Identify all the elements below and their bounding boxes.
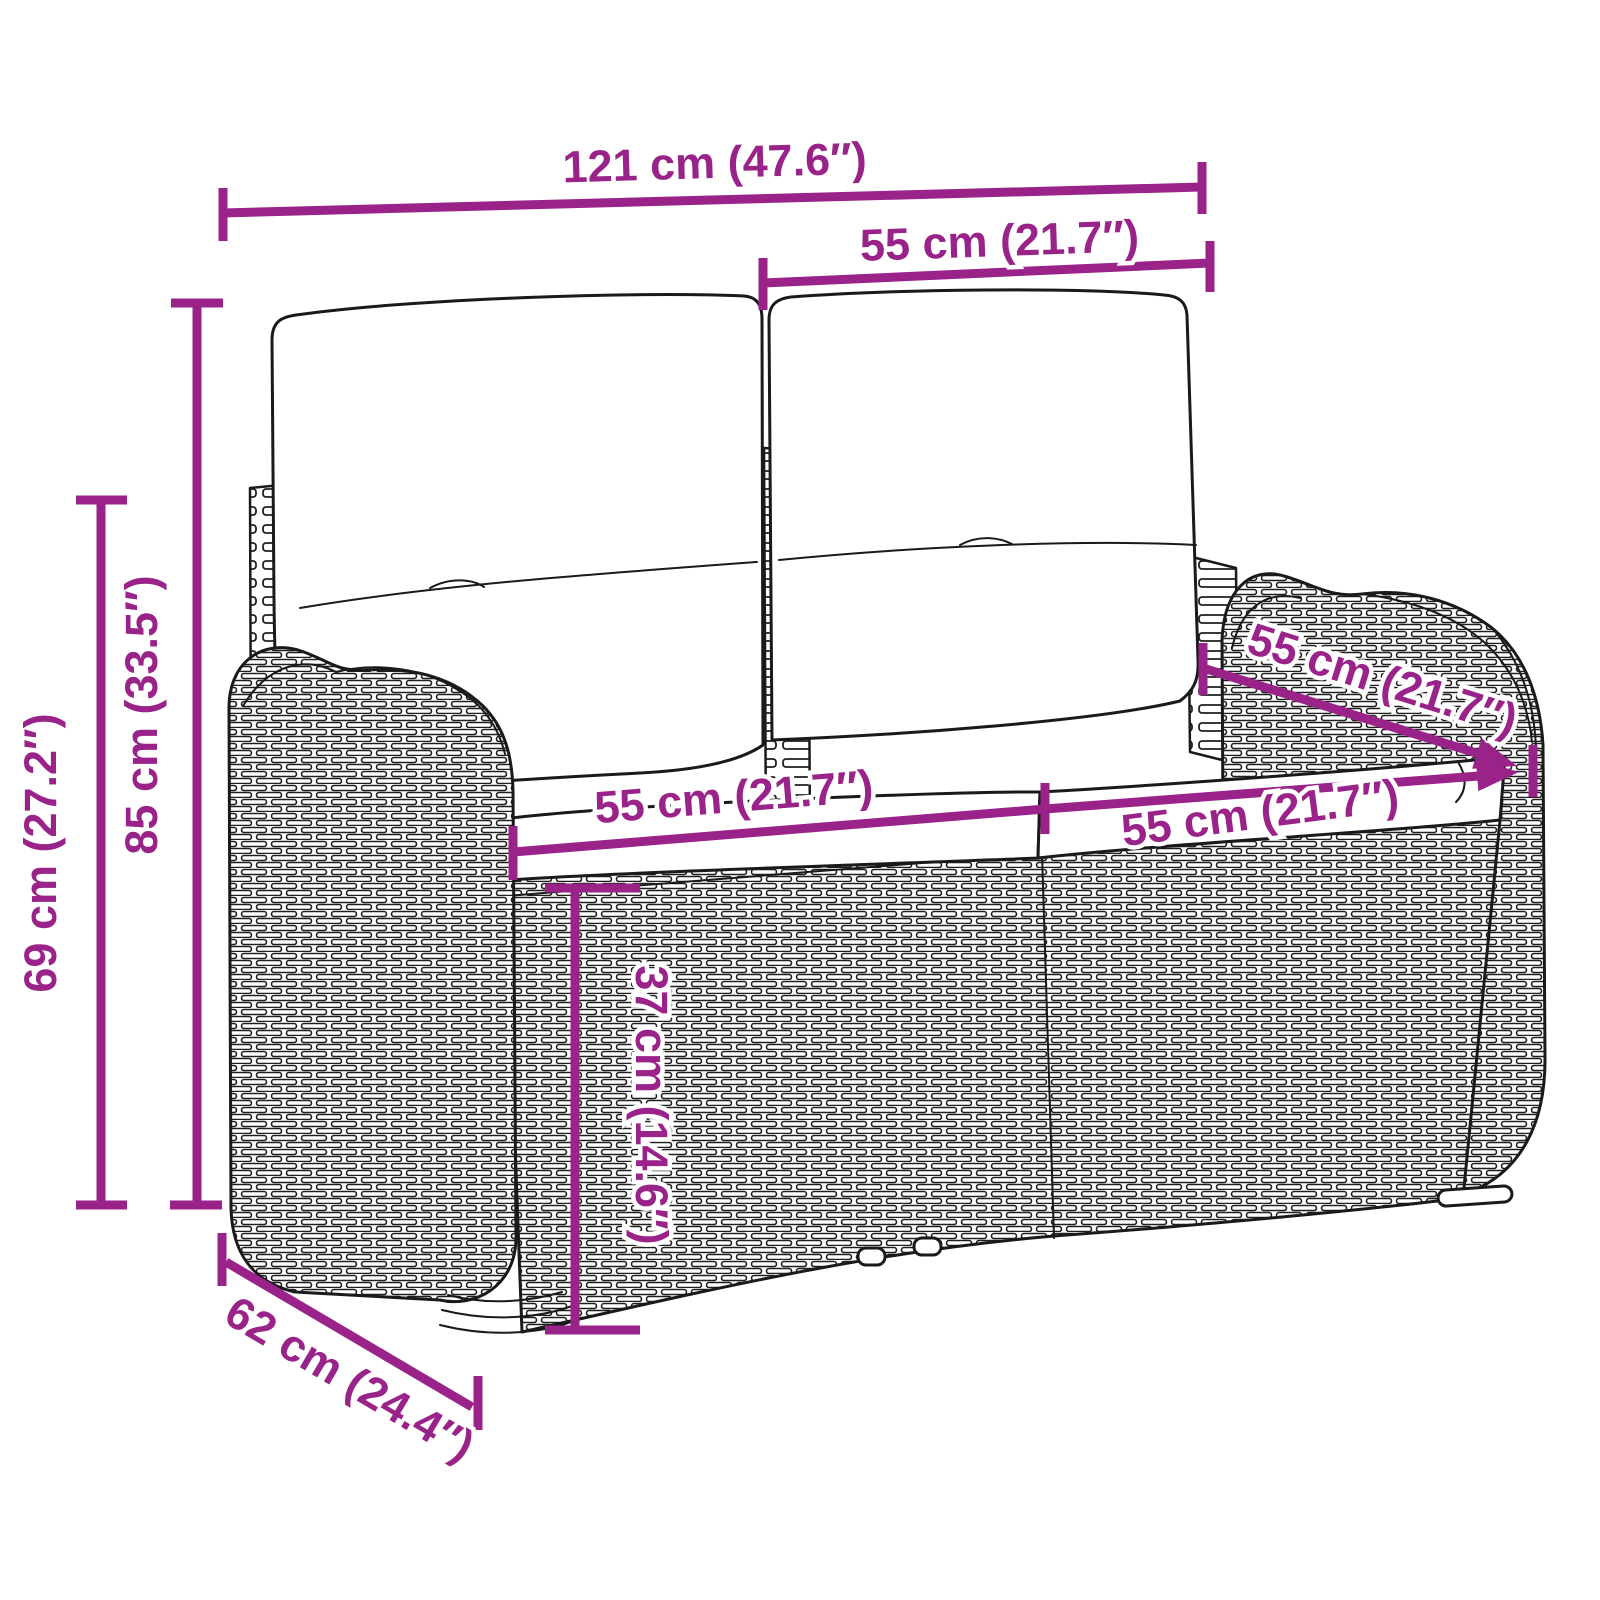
center-foot-left [858, 1248, 885, 1265]
dimension-total-height: 85 cm (33.5″) [116, 303, 223, 1205]
dimension-base-depth-label: 62 cm (24.4″) [217, 1286, 483, 1472]
bench-diagram-svg: 121 cm (47.6″) 55 cm (21.7″) 85 cm (33.5… [0, 0, 1600, 1600]
left-armrest-body [229, 648, 516, 1302]
dimension-back-cushion-width-label: 55 cm (21.7″) [859, 210, 1140, 271]
left-armrest [229, 648, 516, 1302]
dimension-seat-height-label: 37 cm (14.6″) [626, 965, 677, 1244]
back-cushion-right [769, 290, 1198, 740]
right-foot [1438, 1185, 1513, 1206]
center-foot-right [914, 1238, 941, 1255]
dimension-total-height-label: 85 cm (33.5″) [116, 575, 167, 854]
dimension-side-height-label: 69 cm (27.2″) [15, 713, 66, 992]
dimension-side-height: 69 cm (27.2″) [15, 500, 127, 1205]
dimension-diagram: 121 cm (47.6″) 55 cm (21.7″) 85 cm (33.5… [0, 0, 1600, 1600]
dimension-total-width-label: 121 cm (47.6″) [562, 133, 868, 193]
